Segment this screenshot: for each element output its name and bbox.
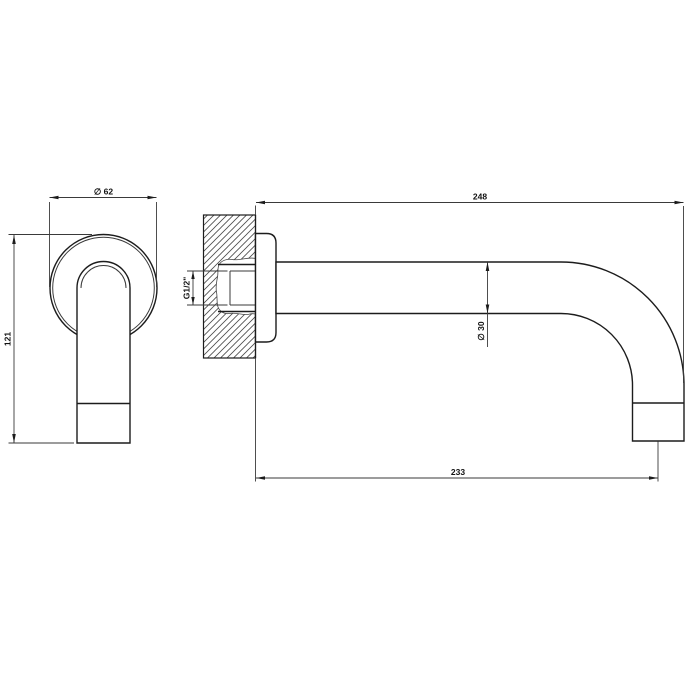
- dim-arrow: [191, 271, 194, 279]
- dim-arrow: [50, 196, 59, 200]
- dim-label-reach: 233: [451, 467, 465, 477]
- dim-arrow: [256, 476, 265, 480]
- drawing-sheet: ∅ 62 121: [0, 0, 700, 700]
- spout-side: [276, 262, 684, 441]
- dim-arrow: [649, 476, 658, 480]
- technical-drawing: ∅ 62 121: [0, 0, 700, 700]
- dim-label-flange-diameter: ∅ 62: [94, 187, 113, 197]
- dim-arrow: [191, 297, 194, 305]
- spout-front-outline: [77, 262, 130, 444]
- dim-label-height: 121: [3, 332, 13, 346]
- front-view: ∅ 62 121: [3, 187, 158, 444]
- dim-arrow: [256, 201, 265, 205]
- dim-label-thread: G1/2": [182, 277, 192, 299]
- side-view: 248 G1/2" ∅ 30 233: [182, 192, 685, 482]
- spout-side-outline: [276, 262, 684, 441]
- dim-label-spout-diameter: ∅ 30: [476, 321, 486, 340]
- dim-arrow: [12, 434, 16, 443]
- spout-front: [77, 262, 130, 444]
- dim-arrow: [148, 196, 157, 200]
- dim-arrow: [12, 235, 16, 244]
- dim-label-projection: 248: [473, 192, 487, 202]
- wall-breakout-cavity: [216, 258, 255, 315]
- flange-side-profile: [256, 234, 277, 343]
- dim-arrow: [675, 201, 684, 205]
- dim-reach: 233: [256, 358, 659, 482]
